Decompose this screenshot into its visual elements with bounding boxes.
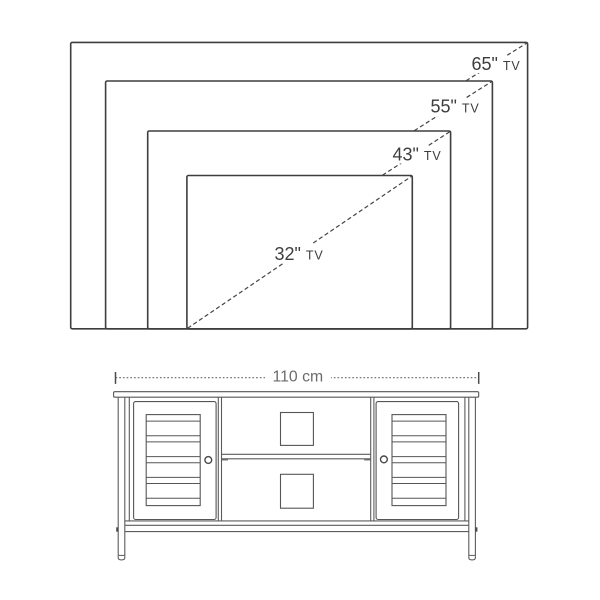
svg-text:110 cm: 110 cm <box>273 368 324 385</box>
